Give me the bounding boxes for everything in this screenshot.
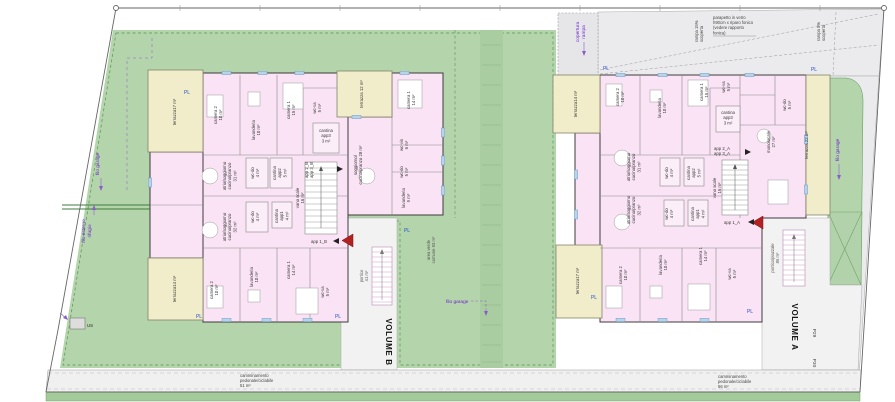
door-label-a-app1: app 1_A (724, 220, 740, 225)
pl-marker-3: PL (404, 228, 410, 234)
room-label-a-terrace22: terrazza 22 m² (804, 131, 809, 159)
annotation-filo-garage-right: filo garage (835, 138, 841, 161)
building-volume-a (553, 73, 830, 322)
room-label-b-terrace12: terrazza 12 m² (359, 80, 364, 108)
us-box (70, 318, 85, 329)
terrace-b-top-mid (337, 71, 392, 117)
pl-marker-6: PL (747, 309, 753, 315)
pl-marker-5: PL (591, 295, 597, 301)
lawn-right-hip (828, 212, 862, 285)
label-volume-a: VOLUME A (790, 303, 799, 350)
site-plan-drawing: terrazza17 m² camera 210 m² lavanderia10… (0, 0, 895, 402)
lawn-hatch-band (480, 30, 503, 368)
pl-marker-1: PL (184, 90, 190, 96)
annotation-filo-garage-left: filo garage (95, 152, 101, 175)
annotation-filo-garage-mid: filo garage (446, 299, 469, 305)
stairs-a-piazzale (783, 230, 805, 286)
room-label-b-wcvis: wc-vis6 m² (399, 139, 409, 151)
door-label-b-app1: app 1_B (311, 239, 327, 244)
label-p30: P30 (811, 359, 817, 368)
terrace-a-right (806, 75, 830, 215)
door-label-a-app23: app 2_Aapp 3_A (714, 146, 730, 156)
label-us: US (87, 323, 93, 328)
site-plan: terrazza17 m² camera 210 m² lavanderia10… (0, 0, 895, 402)
stairs-b-portico (372, 247, 392, 305)
room-label-a-terrace-bl: terrazza17 m² (575, 267, 580, 294)
pl-marker-7: PL (196, 314, 202, 320)
label-p29: P29 (811, 329, 817, 338)
room-label-b-terrace-tl: terrazza17 m² (172, 98, 177, 125)
building-a-left-strip (575, 133, 600, 250)
pl-marker-8: PL (335, 314, 341, 320)
label-volume-b: VOLUME B (384, 318, 393, 365)
area-label-portico-b: portico41 m² (359, 269, 369, 282)
area-label-area-verde: area verdecomune 93 m² (426, 236, 436, 263)
door-label-b-app23: app 2_Bapp 3_B (304, 162, 314, 178)
lawn-bottom-strip (46, 392, 860, 401)
stairs-a-interior (722, 160, 748, 215)
pl-marker-4: PL (811, 67, 817, 73)
room-label-a-terrace-tl: terrazza14 m² (573, 90, 578, 117)
room-label-b-terrace-bl: terrazza14 m² (172, 275, 177, 302)
pl-marker-2: PL (603, 66, 609, 72)
